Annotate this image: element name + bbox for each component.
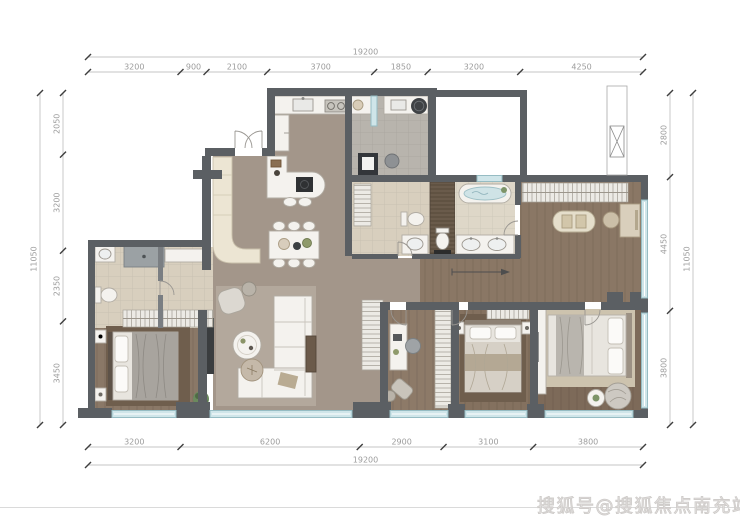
lamp-icon [99,393,103,397]
pillow [608,348,623,374]
pillow [115,336,128,362]
svg-text:2050: 2050 [53,114,62,134]
glass-partition [371,96,377,126]
dining-chair [303,258,315,267]
toilet-tank [436,228,449,233]
dining-chair [288,221,300,230]
watermark-text: 搜狐号@搜狐焦点南充站 [537,492,740,518]
toilet [408,213,424,226]
basin [99,249,111,259]
tray [271,160,281,167]
kettle-icon [293,242,301,250]
dining-chair [303,221,315,230]
headboard [465,320,521,325]
svg-text:1850: 1850 [391,63,411,72]
utility-shelf [354,184,371,226]
floor-plan: 3200900210037001850320042501920032006200… [0,0,740,524]
svg-text:19200: 19200 [353,48,378,57]
bathtub-water [464,187,506,200]
bookshelf [362,300,383,370]
svg-text:4250: 4250 [571,63,591,72]
headboard [626,313,632,378]
svg-text:3700: 3700 [311,63,331,72]
cooktop [325,100,347,112]
lamp-icon [99,335,103,339]
pillow [115,366,128,392]
drain-icon [142,255,146,259]
laptop-icon [393,334,402,341]
svg-text:3800: 3800 [660,358,669,378]
vent-shaft [607,86,627,175]
office-chair [406,339,421,354]
side-table [242,282,256,296]
desk-chair [603,212,619,228]
toilet [436,233,449,250]
svg-text:2800: 2800 [660,125,669,145]
toilet-tank [95,287,101,303]
pouf-chair [605,383,631,409]
svg-text:19200: 19200 [353,456,378,465]
washing-machine-icon [411,98,427,114]
pillow [470,327,491,339]
svg-text:3200: 3200 [124,63,144,72]
dining-chair [288,258,300,267]
bath-mat [434,250,451,254]
svg-text:3450: 3450 [53,363,62,383]
toilet-tank [401,212,407,226]
coffee-machine-icon [274,170,280,176]
svg-text:3100: 3100 [478,438,498,447]
dressing-island [553,211,595,232]
svg-text:4450: 4450 [660,234,669,254]
svg-text:11050: 11050 [683,246,692,271]
dining-chair [273,221,285,230]
plant-bowl-icon [303,239,312,248]
desk [390,324,407,370]
entry-door-left [235,131,252,148]
bath-plant-icon [501,187,507,193]
svg-text:3200: 3200 [53,192,62,212]
study-wardrobe [435,308,451,408]
lamp-icon [525,326,529,330]
faucet-icon [302,97,305,100]
shoe-cabinet [165,249,208,262]
stool [284,198,297,207]
side-console [306,336,316,372]
bowl [353,100,363,110]
entry-door-right [245,131,262,148]
basin [462,239,480,251]
basin [488,239,506,251]
svg-text:3200: 3200 [124,438,144,447]
svg-text:3800: 3800 [578,438,598,447]
water-heater-icon [385,154,399,168]
svg-text:2900: 2900 [391,438,411,447]
headboard [108,332,113,400]
svg-text:6200: 6200 [260,438,280,447]
dining-chair [273,258,285,267]
stool [299,198,312,207]
floor-plan-page: 3200900210037001850320042501920032006200… [0,0,740,524]
toilet [101,288,117,302]
svg-text:900: 900 [186,63,201,72]
svg-text:2100: 2100 [227,63,247,72]
blanket [556,315,584,376]
svg-text:3200: 3200 [464,63,484,72]
svg-text:2350: 2350 [53,276,62,296]
svg-text:11050: 11050 [30,246,39,271]
pillow [608,318,623,344]
mirror [635,210,638,230]
kitchen-sink [293,99,313,111]
bed-throw [465,354,521,371]
window [477,176,502,182]
plant-icon [593,395,600,402]
island-cooktop [296,177,313,192]
pillow [495,327,516,339]
laundry-sink [391,100,406,110]
